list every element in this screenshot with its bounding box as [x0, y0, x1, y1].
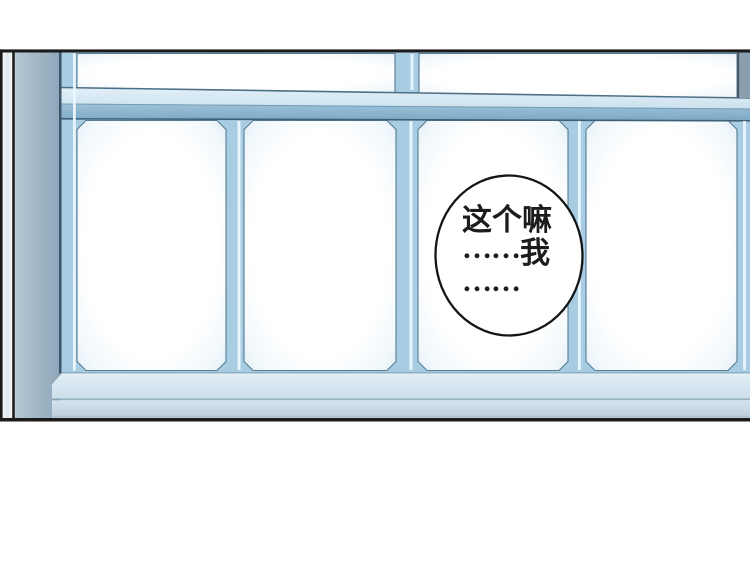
- speech-bubble-text: 这个嘛 ……我 ……: [462, 204, 582, 303]
- sill-separator-line: [52, 399, 750, 401]
- wall-pillar: [15, 53, 60, 420]
- left-jamb-highlight: [73, 54, 76, 371]
- pillar-ink-line: [12, 53, 15, 419]
- mullion-2-highlight: [410, 121, 413, 370]
- right-jamb-upper: [738, 53, 750, 99]
- window-sill-front: [52, 400, 750, 418]
- comic-panel: 这个嘛 ……我 ……: [0, 0, 750, 586]
- mullion-1-highlight: [238, 121, 241, 370]
- panel-border-bottom: [0, 418, 750, 422]
- sill-bottom-shade-line: [52, 416, 750, 417]
- window-scene-graphic: [0, 0, 750, 586]
- panel-border-top: [0, 49, 750, 52]
- right-jamb-upper-edge: [738, 53, 740, 99]
- transom-mullion-highlight: [411, 54, 414, 90]
- pillar-frame-shadow-line: [59, 53, 62, 374]
- speech-line-2-ellipsis: ……: [462, 232, 520, 265]
- window-sill-top: [52, 373, 750, 399]
- glass-pane-4: [586, 121, 737, 371]
- glass-pane-top-right: [419, 54, 737, 99]
- right-jamb-highlight: [743, 121, 746, 370]
- speech-line-2-text: 我: [520, 237, 550, 270]
- speech-line-3-ellipsis: ……: [462, 265, 520, 298]
- glass-pane-1: [77, 121, 226, 371]
- wall-edge-strip: [3, 53, 13, 419]
- speech-line-3: ……: [462, 270, 582, 303]
- panel-border-left: [0, 49, 3, 421]
- glass-pane-2: [244, 121, 396, 371]
- glass-pane-top-left: [77, 54, 395, 94]
